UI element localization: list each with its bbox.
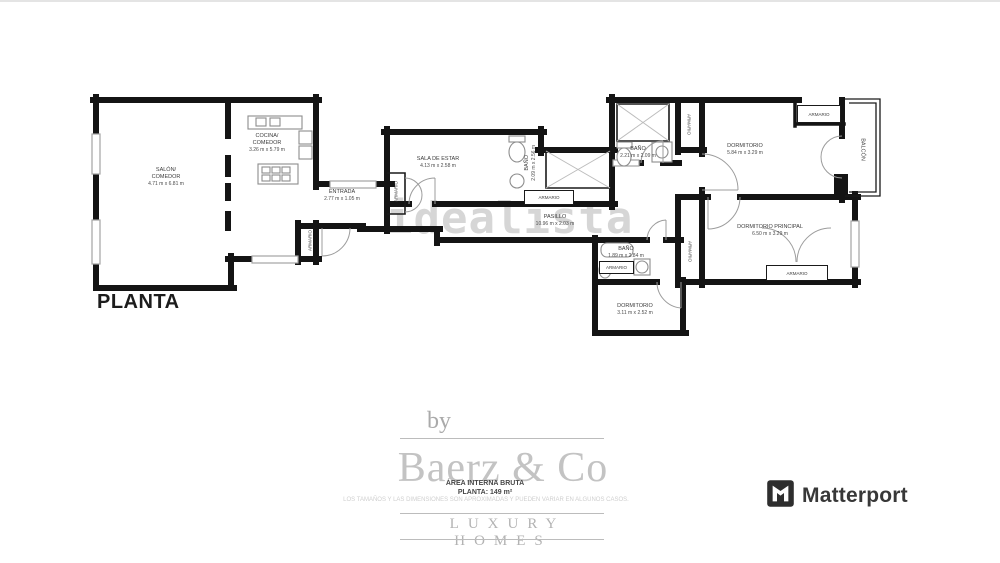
room-name: SALÓN/ COMEDOR [116,167,216,181]
brand-by-text: by [404,408,474,435]
room-dims: 3.11 m x 2.52 m [587,310,683,317]
room-dims: 10.96 m x 2.03 m [510,221,600,228]
area-label: ÁREA INTERNA BRUTA [446,480,524,487]
closet-label-dormitorio: ARMARIO [687,100,692,150]
room-dims: 5.84 m x 3.29 m [695,150,795,157]
room-name: BALCÓN [858,120,865,180]
gross-area-note: ÁREA INTERNA BRUTA PLANTA: 149 m² [420,480,550,498]
room-label-salon: SALÓN/ COMEDOR 4.71 m x 6.81 m [116,167,216,188]
brand-rule-top [400,438,604,439]
brand-tagline: LUXURY HOMES [398,516,608,550]
room-dims: 2.77 m x 1.05 m [298,196,386,203]
room-dims: 1.89 m x 2.84 m [592,253,660,260]
room-name: DORMITORIO PRINCIPAL [700,224,840,231]
area-value: PLANTA: 149 m² [458,489,512,496]
room-dims: 4.13 m x 2.58 m [388,163,488,170]
room-name: BAÑO [603,146,673,153]
room-label-entrada: ENTRADA 2.77 m x 1.05 m [298,189,386,203]
matterport-logo-text: Matterport [802,484,908,508]
closet-label-principal-left: ARMARIO [688,227,693,277]
room-label-dormitorio-principal: DORMITORIO PRINCIPAL 6.50 m x 3.29 m [700,224,840,238]
room-label-dormitorio-2: DORMITORIO 3.11 m x 2.52 m [587,303,683,317]
room-name: BAÑO [524,133,531,193]
room-label-bano-1: BAÑO 2.09 m x 2.56 m [524,133,538,193]
room-label-dormitorio: DORMITORIO 5.84 m x 3.29 m [695,143,795,157]
dimensions-disclaimer: LOS TAMAÑOS Y LAS DIMENSIONES SON APROXI… [340,497,632,503]
room-dims: 4.71 m x 6.81 m [116,181,216,188]
room-name: SALA DE ESTAR [388,156,488,163]
room-label-bano-3: BAÑO 1.89 m x 2.84 m [592,246,660,260]
room-label-sala-de-estar: SALA DE ESTAR 4.13 m x 2.58 m [388,156,488,170]
matterport-cube-icon [766,479,795,513]
closet-label-top-right: ARMARIO [797,105,841,123]
floor-title: PLANTA [97,291,180,314]
matterport-logo: Matterport [766,479,908,513]
room-dims: 2.09 m x 2.56 m [531,133,538,193]
closet-label-salon: ARMARIO [308,216,313,266]
room-name: BAÑO [592,246,660,253]
room-dims: 3.26 m x 5.79 m [217,147,317,154]
closet-label-entrada: ARMARIO [394,167,399,217]
room-name: COCINA/ COMEDOR [217,133,317,147]
room-name: PASILLO [510,214,600,221]
floorplan-page: idealista [0,0,1000,563]
room-dims: 6.50 m x 3.29 m [700,231,840,238]
room-label-bano-2: BAÑO 2.21 m x 2.09 m [603,146,673,160]
room-name: ENTRADA [298,189,386,196]
room-label-balcon: BALCÓN [858,120,865,180]
room-name: DORMITORIO [695,143,795,150]
room-label-pasillo: PASILLO 10.96 m x 2.03 m [510,214,600,228]
brand-rule-middle [400,513,604,514]
closet-label-pasillo: ARMARIO [524,190,574,205]
closet-label-principal-bottom: ARMARIO [766,265,828,281]
brand-rule-bottom [400,539,604,540]
closet-label-bano-3: ARMARIO [599,261,634,274]
room-name: DORMITORIO [587,303,683,310]
room-label-cocina: COCINA/ COMEDOR 3.26 m x 5.79 m [217,133,317,154]
room-dims: 2.21 m x 2.09 m [603,153,673,160]
